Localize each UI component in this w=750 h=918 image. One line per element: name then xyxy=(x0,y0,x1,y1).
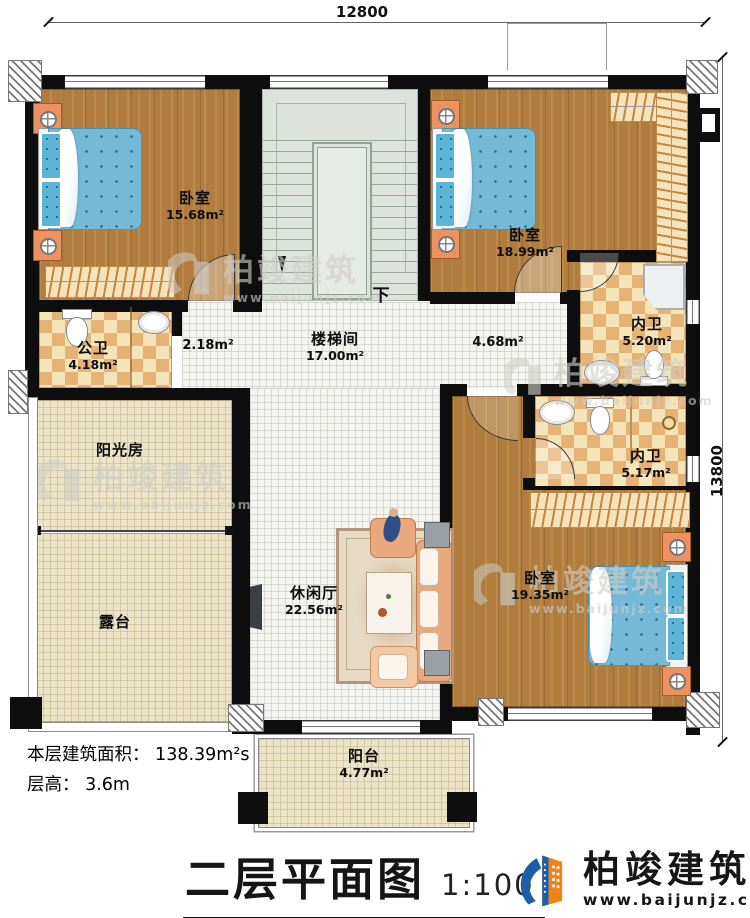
room-label-bedroom2: 卧室18.99m² xyxy=(490,227,560,259)
roof-outline xyxy=(507,23,607,70)
page-title: 二层平面图 xyxy=(185,843,425,908)
sofa-cushion xyxy=(378,654,408,680)
window xyxy=(686,456,700,482)
wall-segment xyxy=(567,290,580,384)
sink-icon xyxy=(138,311,170,334)
room-label-bedroom3: 卧室19.35m² xyxy=(502,570,578,602)
room-label-public-bath: 公卫4.18m² xyxy=(55,340,131,372)
window xyxy=(302,720,420,734)
coffee-table-icon xyxy=(366,572,412,634)
brand-name: 柏竣建筑 xyxy=(583,851,750,888)
stairs-down-label: 下 xyxy=(368,286,394,306)
hatch xyxy=(228,704,264,732)
brand-logo: 柏竣建筑 www.baijunjz.com xyxy=(515,851,750,909)
wall-vent-inner xyxy=(702,114,715,132)
hatch xyxy=(686,692,720,728)
room-label-terrace: 露台 xyxy=(80,614,150,632)
area-label-corridor: 2.18m² xyxy=(176,338,240,353)
wall-segment xyxy=(172,300,182,336)
wall-segment xyxy=(25,300,188,312)
dimension-label-right: 13800 xyxy=(708,445,726,497)
wall-segment xyxy=(233,300,262,312)
terrace-railing xyxy=(28,722,234,732)
pillow-icon xyxy=(434,132,456,180)
dimension-label-top: 12800 xyxy=(322,3,402,21)
side-table-icon xyxy=(424,522,450,548)
shower-head-icon xyxy=(662,416,676,430)
toilet-icon xyxy=(644,350,664,379)
stair-rail xyxy=(312,142,372,300)
nightstand-icon xyxy=(662,532,691,562)
window xyxy=(686,300,700,324)
brand-url: www.baijunjz.com xyxy=(583,891,750,909)
pillow-icon xyxy=(666,616,686,662)
room-label-ensuite-top: 内卫5.20m² xyxy=(612,316,682,348)
wall-segment xyxy=(567,252,580,260)
window xyxy=(508,707,652,721)
divider-end xyxy=(225,526,234,535)
room-sunroom-floor xyxy=(36,400,232,531)
nightstand-icon xyxy=(662,666,691,696)
column xyxy=(447,792,477,822)
wall-segment xyxy=(418,89,430,301)
brand-logo-icon xyxy=(515,851,573,909)
window xyxy=(65,75,205,89)
floor-area-text: 本层建筑面积： 138.39m²s xyxy=(27,741,249,771)
room-label-stair-hall: 楼梯间17.00m² xyxy=(295,331,375,363)
toilet-icon xyxy=(590,406,610,435)
wall-segment xyxy=(232,388,250,720)
wardrobe-icon xyxy=(45,266,175,298)
sofa-cushion xyxy=(419,548,439,586)
stair-direction-arrow xyxy=(278,256,286,273)
hatch xyxy=(8,370,28,414)
wall-segment xyxy=(430,292,515,304)
terrace-railing xyxy=(28,397,38,732)
wall-segment xyxy=(523,396,535,438)
wall-segment xyxy=(205,75,270,89)
sink-icon xyxy=(539,400,575,425)
room-label-lounge: 休闲厅22.56m² xyxy=(276,585,352,617)
pillow-icon xyxy=(666,570,686,616)
room-label-balcony: 阳台4.77m² xyxy=(326,748,402,780)
room-label-bedroom1: 卧室15.68m² xyxy=(145,190,245,222)
person-head xyxy=(389,508,398,517)
floor-plan: 12800 13800 xyxy=(0,0,750,918)
terrace-divider xyxy=(36,530,232,532)
drawing-title: 二层平面图 1:100 xyxy=(183,843,545,918)
area-label-hall: 4.68m² xyxy=(466,335,530,350)
hatch xyxy=(478,698,504,726)
window xyxy=(270,75,388,89)
column xyxy=(10,697,42,729)
dimension-line-top xyxy=(48,22,706,23)
wall-segment xyxy=(388,75,488,89)
pillow-icon xyxy=(40,132,62,180)
pillow-icon xyxy=(434,180,456,228)
sofa-cushion xyxy=(419,590,439,628)
floor-info: 本层建筑面积： 138.39m²s 层高： 3.6m xyxy=(27,741,249,801)
floor-height-text: 层高： 3.6m xyxy=(27,771,249,801)
wardrobe-icon xyxy=(530,492,690,528)
wall-segment xyxy=(567,384,700,396)
nightstand-icon xyxy=(431,100,460,131)
bed-blanket-fold xyxy=(590,567,612,663)
pillow-icon xyxy=(40,180,62,228)
nightstand-icon xyxy=(33,230,62,261)
room-label-ensuite-mid: 内卫5.17m² xyxy=(608,448,684,480)
wall-segment xyxy=(686,75,700,735)
hatch xyxy=(686,60,718,94)
wall-segment xyxy=(25,388,250,400)
sink-icon xyxy=(584,360,620,385)
wall-segment xyxy=(517,384,567,396)
tv-icon xyxy=(250,584,262,630)
flower-icon xyxy=(378,608,387,617)
nightstand-icon xyxy=(431,228,460,259)
hatch xyxy=(8,60,42,102)
room-label-sunroom: 阳光房 xyxy=(75,442,165,460)
wall-segment xyxy=(420,720,452,734)
side-table-icon xyxy=(424,650,450,676)
wall-segment xyxy=(523,486,686,490)
dimension-line-right xyxy=(722,58,723,742)
window xyxy=(488,75,608,89)
wardrobe-icon xyxy=(656,92,688,262)
